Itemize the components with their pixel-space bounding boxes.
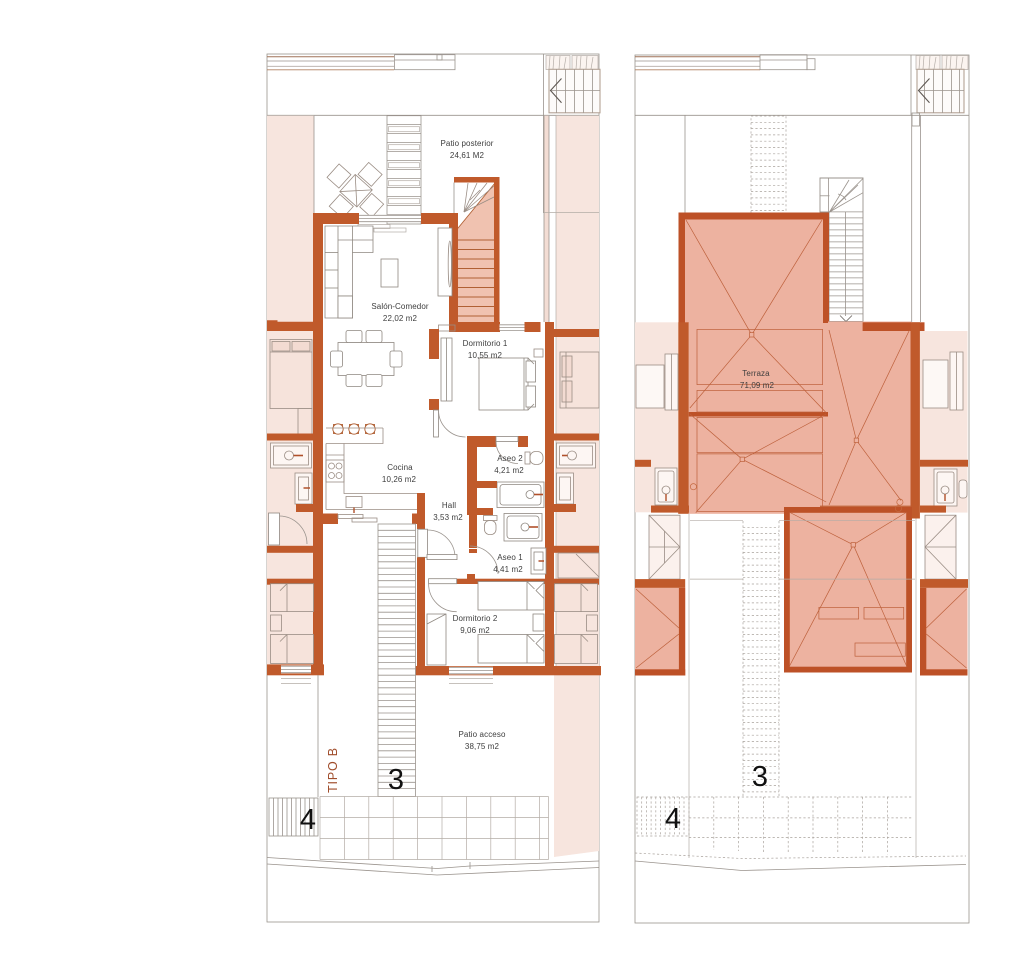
svg-text:Aseo 1: Aseo 1 [497, 553, 523, 562]
svg-text:Hall: Hall [442, 501, 456, 510]
svg-text:Dormitorio 1: Dormitorio 1 [463, 339, 508, 348]
svg-text:Aseo 2: Aseo 2 [497, 454, 523, 463]
svg-text:24,61 M2: 24,61 M2 [450, 151, 485, 160]
svg-text:38,75 m2: 38,75 m2 [465, 742, 500, 751]
svg-text:Patio posterior: Patio posterior [440, 139, 493, 148]
svg-text:4,41 m2: 4,41 m2 [493, 565, 523, 574]
svg-text:4: 4 [300, 804, 316, 836]
svg-text:3,53 m2: 3,53 m2 [433, 513, 463, 522]
svg-text:Patio acceso: Patio acceso [458, 730, 505, 739]
svg-text:4,21 m2: 4,21 m2 [494, 466, 524, 475]
svg-text:71,09 m2: 71,09 m2 [740, 381, 775, 390]
svg-text:10,55 m2: 10,55 m2 [468, 351, 503, 360]
svg-text:Salón-Comedor: Salón-Comedor [371, 302, 429, 311]
svg-text:3: 3 [388, 764, 404, 796]
svg-text:4: 4 [665, 803, 681, 835]
svg-text:Cocina: Cocina [387, 463, 413, 472]
svg-text:22,02 m2: 22,02 m2 [383, 314, 418, 323]
svg-text:9,06 m2: 9,06 m2 [460, 626, 490, 635]
svg-text:10,26 m2: 10,26 m2 [382, 475, 417, 484]
svg-text:3: 3 [752, 761, 768, 793]
svg-text:Terraza: Terraza [742, 369, 770, 378]
svg-text:Dormitorio 2: Dormitorio 2 [453, 614, 498, 623]
svg-text:TIPO B: TIPO B [326, 747, 340, 793]
